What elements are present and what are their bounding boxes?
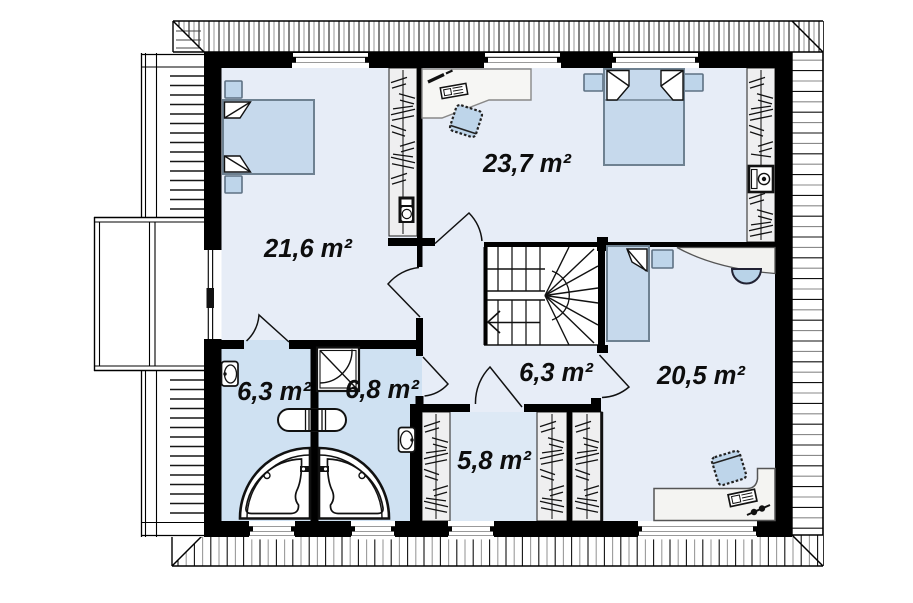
svg-text:20,5 m²: 20,5 m²	[656, 362, 746, 390]
svg-text:21,6 m²: 21,6 m²	[263, 235, 353, 263]
svg-text:6,3 m²: 6,3 m²	[237, 378, 312, 406]
svg-text:5,8 m²: 5,8 m²	[457, 447, 532, 475]
svg-text:6,8 m²: 6,8 m²	[345, 376, 420, 404]
svg-text:23,7 m²: 23,7 m²	[482, 150, 572, 178]
svg-text:6,3 m²: 6,3 m²	[519, 359, 594, 387]
